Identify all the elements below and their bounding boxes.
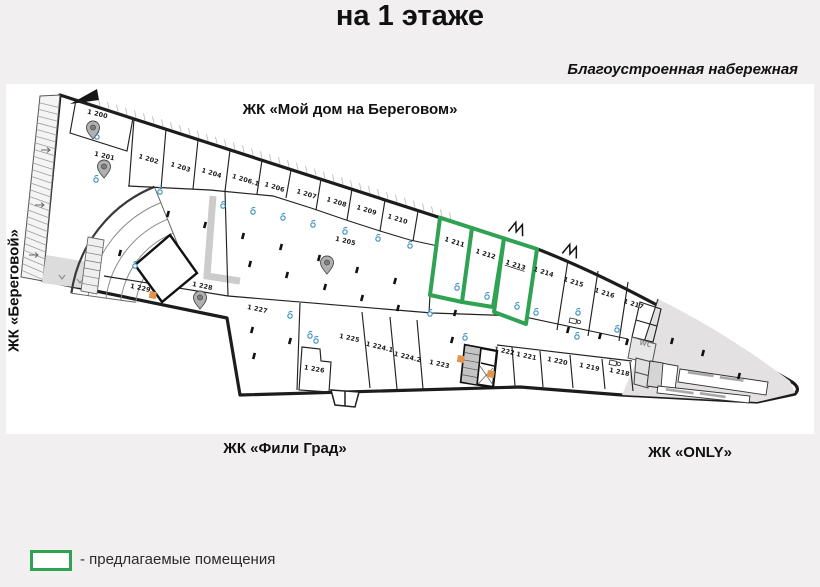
bottom-right-complex-label: ЖК «ONLY» — [628, 444, 752, 461]
top-complex-label: ЖК «Мой дом на Береговом» — [220, 101, 480, 118]
vestibule — [331, 390, 359, 407]
legend-text: - предлагаемые помещения — [80, 551, 275, 568]
elevator-block — [461, 345, 497, 387]
floor-plan-svg: 1 2001 2011 2021 2031 2041 206.11 2061 2… — [0, 0, 820, 587]
orange-marker — [487, 370, 495, 378]
bottom-left-complex-label: ЖК «Фили Град» — [203, 440, 367, 457]
orange-marker — [457, 355, 465, 363]
left-complex-label: ЖК «Береговой» — [6, 211, 23, 371]
legend-swatch — [30, 550, 72, 571]
